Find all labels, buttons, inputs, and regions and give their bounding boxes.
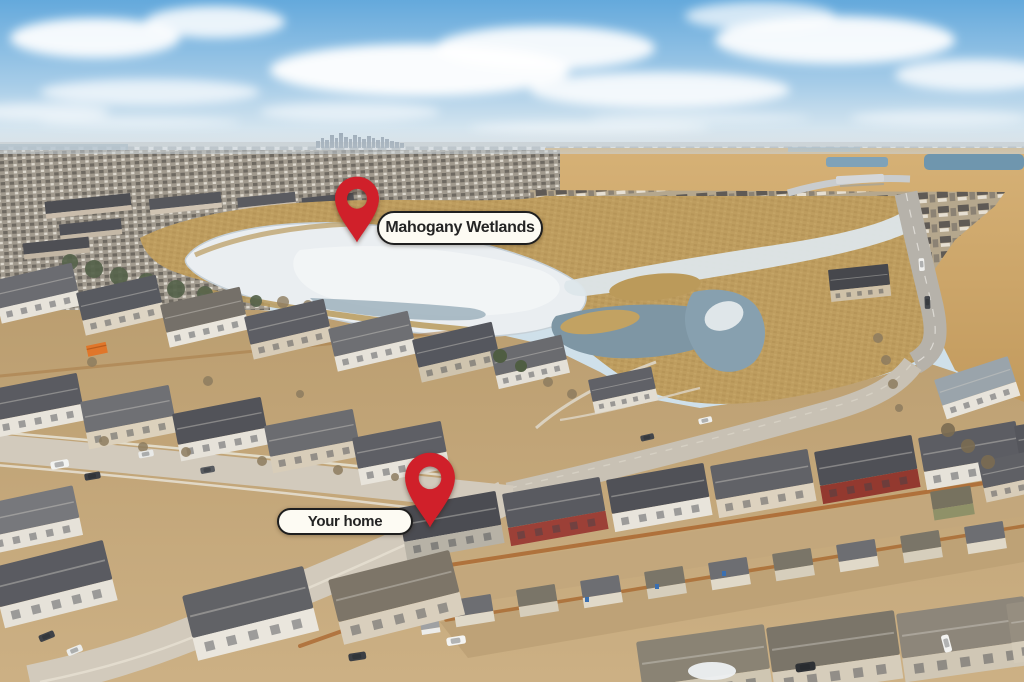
pond-far (826, 157, 888, 167)
home-label-text: Your home (308, 513, 383, 530)
aerial-photo: Mahogany Wetlands Your home (0, 0, 1024, 682)
wetlands-label-text: Mahogany Wetlands (385, 219, 534, 237)
aerial-photo-scene (0, 0, 1024, 682)
home-label: Your home (277, 508, 413, 535)
map-pin-wetlands-icon (334, 176, 380, 248)
white-tent (688, 662, 736, 680)
map-pin-home-icon (404, 452, 456, 533)
pond-right (924, 154, 1024, 170)
wetlands-label: Mahogany Wetlands (377, 211, 543, 245)
